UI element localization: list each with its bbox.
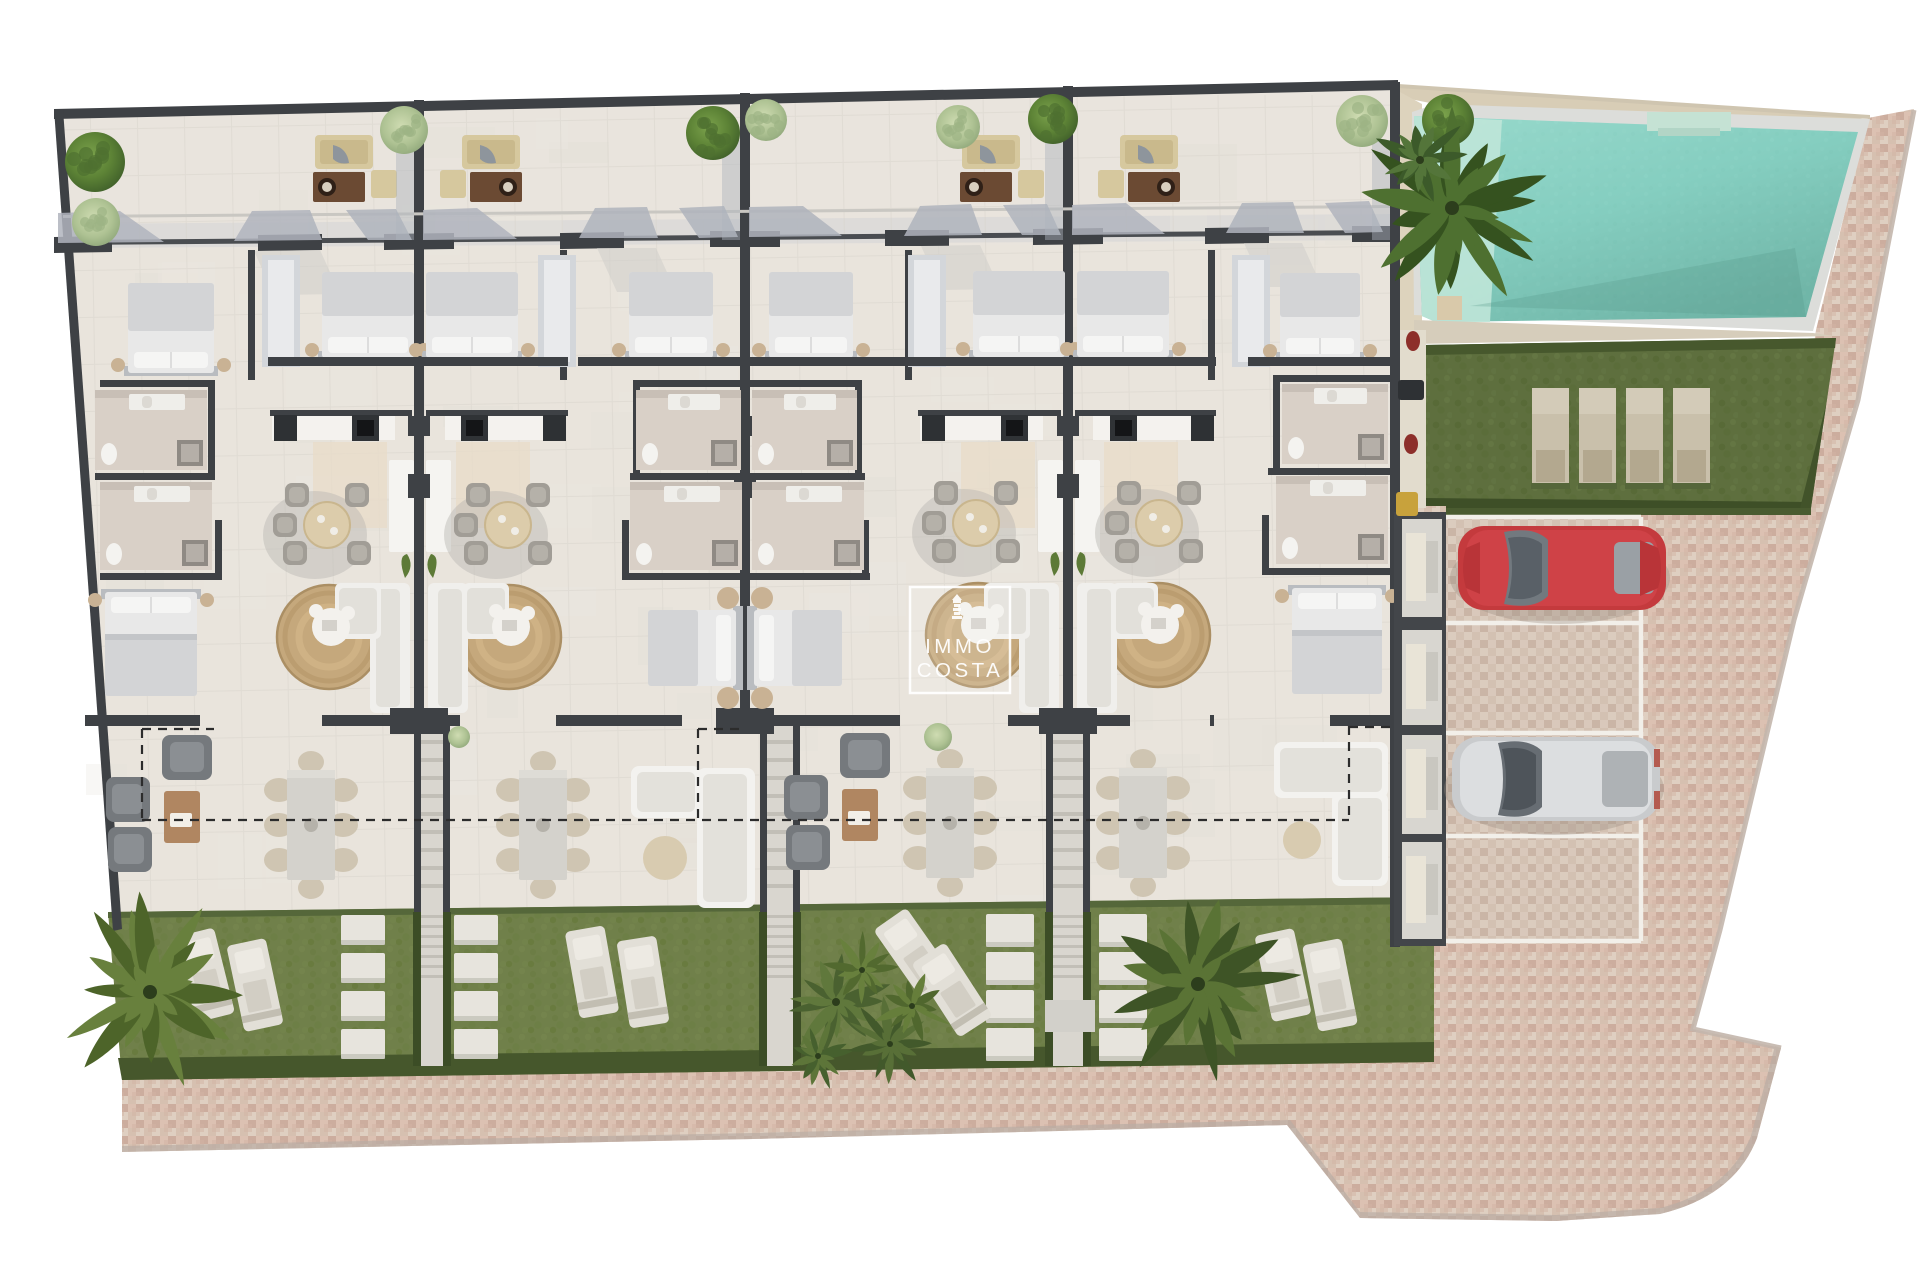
svg-text:IMMO: IMMO <box>925 635 995 658</box>
svg-text:COSTA: COSTA <box>917 659 1004 682</box>
